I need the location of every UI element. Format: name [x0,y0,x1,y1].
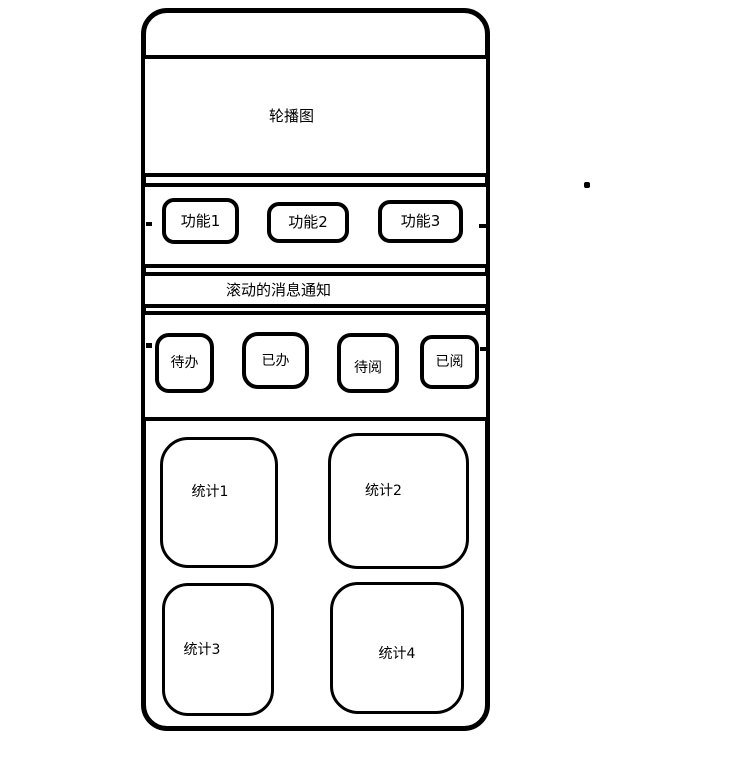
action-button-toread[interactable]: 待阅 [337,333,399,393]
carousel-label: 轮播图 [269,109,314,124]
feature-button-2-label: 功能2 [288,215,328,230]
carousel-placeholder[interactable]: 轮播图 [141,55,490,177]
stat-card-2-label: 统计2 [365,484,402,498]
feature-button-3-label: 功能3 [401,214,441,229]
stray-dot-mark [584,182,590,188]
notice-bar-label: 滚动的消息通知 [226,283,331,298]
stat-card-1[interactable]: 统计1 [160,437,278,568]
stat-card-1-label: 统计1 [192,485,229,499]
action-button-done-label: 已办 [262,354,290,368]
feature-button-3[interactable]: 功能3 [378,200,463,243]
wireframe-canvas: 轮播图 功能1 功能2 功能3 滚动的消息通知 待办 已办 待阅 已阅 统计1 … [0,0,739,768]
stat-card-4[interactable]: 统计4 [330,582,464,714]
stroke-tick-left-actions [146,343,152,348]
stat-card-2[interactable]: 统计2 [328,433,469,569]
stroke-tick-left-features [146,222,152,226]
action-button-done[interactable]: 已办 [242,332,309,389]
action-button-read[interactable]: 已阅 [420,335,479,389]
feature-button-1[interactable]: 功能1 [162,198,239,244]
stat-card-3[interactable]: 统计3 [162,583,274,716]
stroke-tick-right-features [479,224,486,228]
action-button-todo[interactable]: 待办 [155,333,214,393]
action-button-toread-label: 待阅 [354,361,382,375]
stroke-tick-right-actions [480,347,487,351]
action-button-read-label: 已阅 [436,355,464,369]
stat-card-3-label: 统计3 [184,643,221,657]
feature-button-2[interactable]: 功能2 [267,202,349,243]
notice-bar[interactable]: 滚动的消息通知 [141,272,490,308]
stat-card-4-label: 统计4 [379,647,416,661]
action-button-todo-label: 待办 [171,356,199,370]
feature-button-1-label: 功能1 [181,214,221,229]
